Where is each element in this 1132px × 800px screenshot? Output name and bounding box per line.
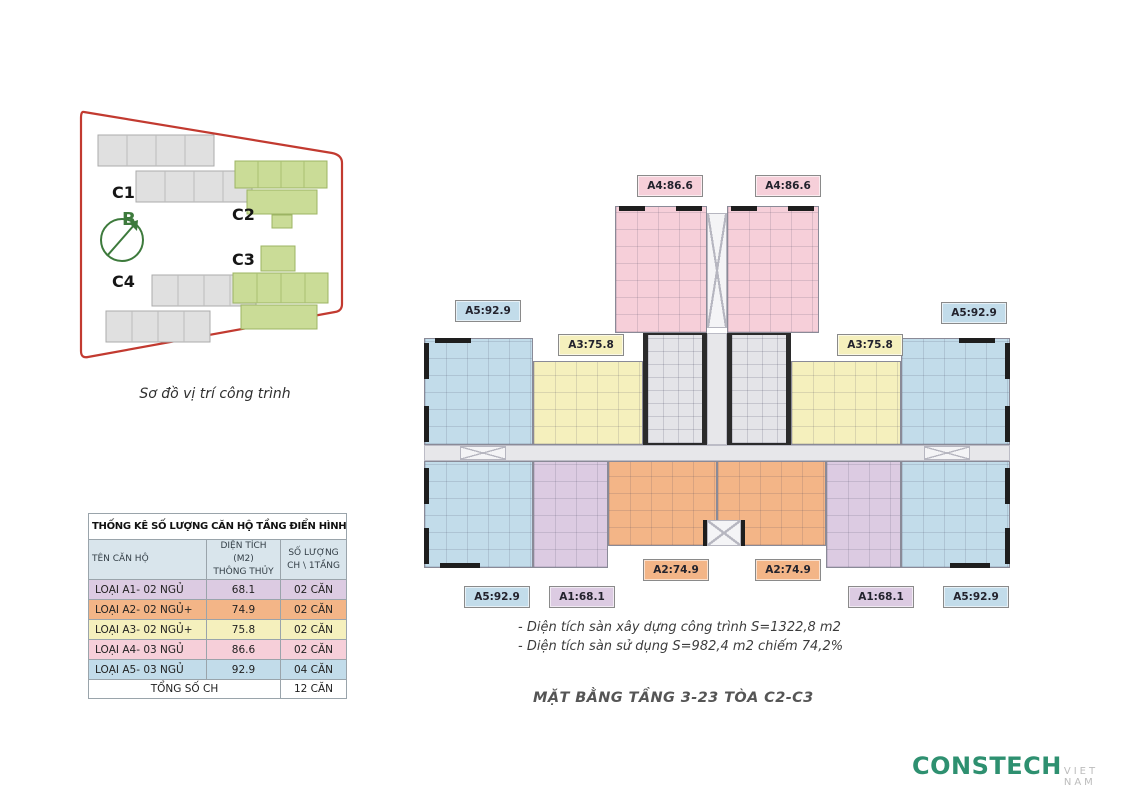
wall-segment [424, 406, 429, 442]
corridor [424, 445, 1010, 461]
apartment-a5-mid-right [901, 338, 1010, 445]
wall-segment [424, 468, 429, 504]
unit-name: LOẠI A5- 03 NGỦ [89, 660, 207, 680]
wall-segment [959, 338, 995, 343]
unit-label-a5: A5:92.9 [464, 586, 530, 608]
core-lobby [707, 333, 727, 445]
unit-label-a3: A3:75.8 [837, 334, 903, 356]
constech-logo: CONSTECH VIET NAM [912, 752, 1132, 788]
wall-segment [1005, 406, 1010, 442]
unit-label-a2: A2:74.9 [755, 559, 821, 581]
floor-plan: A4:86.6 A4:86.6 A5:92.9 A5:92.9 A3:75.8 … [420, 163, 1020, 625]
table-row: LOẠI A5- 03 NGỦ 92.9 04 CĂN [89, 660, 347, 680]
plan-title: MẶT BẰNG TẦNG 3-23 TÒA C2-C3 [533, 690, 814, 706]
table-row: LOẠI A3- 02 NGỦ+ 75.8 02 CĂN [89, 620, 347, 640]
wall-segment [676, 206, 702, 211]
apartment-a5-bottom-right [901, 461, 1010, 568]
table-row: LOẠI A1- 02 NGỦ 68.1 02 CĂN [89, 580, 347, 600]
total-value: 12 CĂN [281, 680, 347, 699]
table-title: THỐNG KÊ SỐ LƯỢNG CĂN HỘ TẦNG ĐIỂN HÌNH … [89, 514, 347, 540]
compass-north-label: B [122, 209, 136, 230]
unit-label-a5: A5:92.9 [455, 300, 521, 322]
wall-segment [741, 520, 745, 546]
unit-count: 04 CĂN [281, 660, 347, 680]
unit-label-a1: A1:68.1 [848, 586, 914, 608]
building-c2-label: C2 [232, 205, 255, 224]
col-header-name: TÊN CĂN HỘ [89, 540, 207, 580]
wall-segment [703, 520, 707, 546]
table-row: LOẠI A2- 02 NGỦ+ 74.9 02 CĂN [89, 600, 347, 620]
apartment-stats-table: THỐNG KÊ SỐ LƯỢNG CĂN HỘ TẦNG ĐIỂN HÌNH … [88, 513, 347, 699]
building-c1-label: C1 [112, 183, 135, 202]
unit-area: 68.1 [207, 580, 281, 600]
total-label: TỔNG SỐ CH [89, 680, 281, 699]
unit-count: 02 CĂN [281, 600, 347, 620]
shaft-top [707, 213, 727, 328]
wall-segment [1005, 528, 1010, 564]
unit-label-a3: A3:75.8 [558, 334, 624, 356]
unit-area: 74.9 [207, 600, 281, 620]
area-notes: - Diện tích sàn xây dựng công trình S=13… [518, 618, 843, 656]
unit-label-a4: A4:86.6 [637, 175, 703, 197]
apartment-a3-right [791, 361, 901, 445]
unit-area: 92.9 [207, 660, 281, 680]
unit-area: 86.6 [207, 640, 281, 660]
unit-count: 02 CĂN [281, 640, 347, 660]
unit-name: LOẠI A2- 02 NGỦ+ [89, 600, 207, 620]
building-c3-label: C3 [232, 250, 255, 269]
apartment-a5-mid-left [424, 338, 533, 445]
site-location-map: C1 B C2 C3 C4 [60, 95, 370, 425]
wall-segment [424, 528, 429, 564]
unit-name: LOẠI A3- 02 NGỦ+ [89, 620, 207, 640]
wall-segment [788, 206, 814, 211]
unit-name: LOẠI A4- 03 NGỦ [89, 640, 207, 660]
site-map-caption: Sơ đồ vị trí công trình [60, 386, 370, 402]
page: C1 B C2 C3 C4 Sơ đồ vị trí công trình TH… [0, 0, 1132, 800]
wall-segment [1005, 343, 1010, 379]
wall-segment [731, 206, 757, 211]
wall-segment [1005, 468, 1010, 504]
shaft-bottom [707, 520, 741, 546]
apartment-a4-right [727, 206, 819, 333]
wall-segment [435, 338, 471, 343]
corridor-shaft-right [924, 446, 970, 460]
col-header-area: DIỆN TÍCH (M2) THÔNG THỦY [207, 540, 281, 580]
unit-label-a5: A5:92.9 [943, 586, 1009, 608]
unit-name: LOẠI A1- 02 NGỦ [89, 580, 207, 600]
wall-segment [424, 343, 429, 379]
building-c4-label: C4 [112, 272, 135, 291]
note-line: - Diện tích sàn xây dựng công trình S=13… [518, 618, 843, 637]
apartment-a3-left [533, 361, 643, 445]
wall-segment [950, 563, 990, 568]
logo-text: CONSTECH [912, 752, 1062, 780]
apartment-a1-right [826, 461, 901, 568]
table-row: LOẠI A4- 03 NGỦ 86.6 02 CĂN [89, 640, 347, 660]
logo-subtext: VIET NAM [1064, 766, 1132, 788]
col-header-count: SỐ LƯỢNG CH \ 1TẦNG [281, 540, 347, 580]
corridor-shaft-left [460, 446, 506, 460]
wall-segment [619, 206, 645, 211]
unit-count: 02 CĂN [281, 580, 347, 600]
apartment-a5-bottom-left [424, 461, 533, 568]
unit-label-a4: A4:86.6 [755, 175, 821, 197]
unit-label-a1: A1:68.1 [549, 586, 615, 608]
unit-label-a2: A2:74.9 [643, 559, 709, 581]
apartment-a4-left [615, 206, 707, 333]
note-line: - Diện tích sàn sử dụng S=982,4 m2 chiếm… [518, 637, 843, 656]
unit-label-a5: A5:92.9 [941, 302, 1007, 324]
elevator-core-left [643, 333, 707, 445]
unit-area: 75.8 [207, 620, 281, 640]
wall-segment [440, 563, 480, 568]
apartment-a1-left [533, 461, 608, 568]
unit-count: 02 CĂN [281, 620, 347, 640]
elevator-core-right [727, 333, 791, 445]
apartment-a2-left [608, 461, 717, 546]
